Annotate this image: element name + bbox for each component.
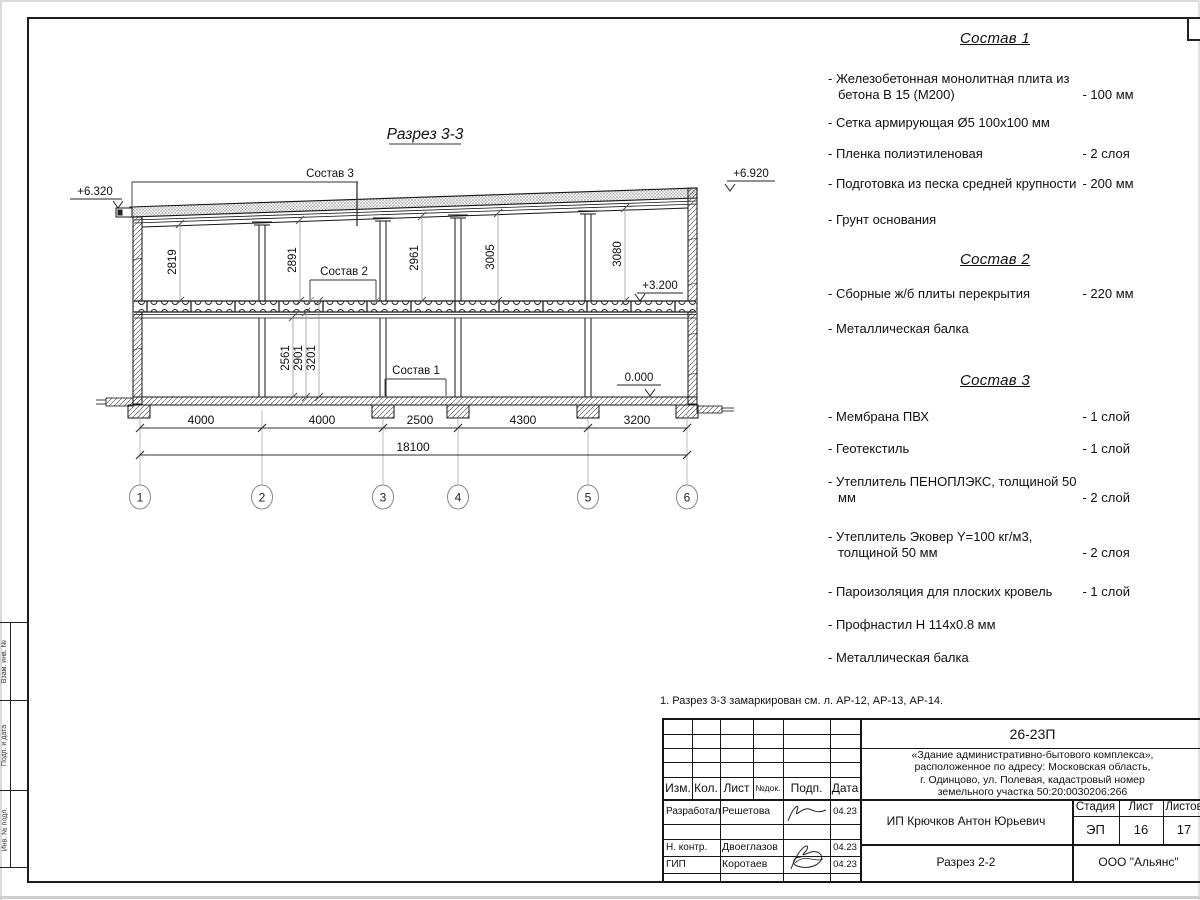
tb-date-ncontrol: 04.23 bbox=[830, 839, 860, 856]
comp-item-text: - Подготовка из песка средней крупности bbox=[828, 176, 1082, 192]
dim-upper-2: 2891 bbox=[287, 247, 299, 273]
section-title: Разрез 3-3 bbox=[387, 126, 464, 144]
dim-bay-4: 4300 bbox=[510, 413, 537, 427]
comp-item-text: - Утеплитель ПЕНОПЛЭКС, толщиной 50 мм bbox=[828, 474, 1082, 505]
axis-5: 5 bbox=[585, 491, 592, 505]
tb-sheets-value: 17 bbox=[1163, 816, 1200, 844]
comp-item-value: - 2 слоя bbox=[1082, 545, 1162, 561]
comp1-item: - Пленка полиэтиленовая - 2 слоя bbox=[828, 146, 1162, 162]
comp-item-text: - Железобетонная монолитная плита из бет… bbox=[828, 71, 1082, 102]
title-block: Изм. Кол. Лист №док. Подп. Дата Разработ… bbox=[662, 718, 1200, 883]
tb-sheet-label: Лист bbox=[1119, 799, 1163, 816]
signature-gip bbox=[785, 839, 829, 873]
comp-item-text: - Металлическая балка bbox=[828, 650, 1082, 666]
axis-3: 3 bbox=[380, 491, 387, 505]
comp3-item: - Утеплитель ПЕНОПЛЭКС, толщиной 50 мм -… bbox=[828, 474, 1162, 505]
comp-item-text: - Металлическая балка bbox=[828, 321, 1082, 337]
dims-lower: 2561 2901 3201 bbox=[280, 297, 323, 401]
dim-lower-1: 2561 bbox=[280, 345, 292, 371]
section-drawing: Разрез 3-3 bbox=[60, 120, 800, 530]
paper-edge-bottom bbox=[0, 896, 1200, 899]
tb-drawing-name: Разрез 2-2 bbox=[860, 844, 1072, 881]
comp-item-text: - Утеплитель Эковер Y=100 кг/м3, толщино… bbox=[828, 529, 1082, 560]
composition-panel: Состав 1 - Железобетонная монолитная пли… bbox=[828, 30, 1162, 665]
axis-1: 1 bbox=[137, 491, 144, 505]
side-stamp-3: Инв. № подл. bbox=[0, 790, 28, 868]
label-sostav-1: Состав 1 bbox=[392, 365, 440, 377]
comp-item-text: - Сборные ж/б плиты перекрытия bbox=[828, 286, 1082, 302]
comp-item-text: - Профнастил Н 114х0.8 мм bbox=[828, 617, 1082, 633]
comp1-item: - Грунт основания bbox=[828, 212, 1162, 228]
comp1-item: - Подготовка из песка средней крупности … bbox=[828, 176, 1162, 192]
comp-item-value: - 200 мм bbox=[1082, 176, 1162, 192]
comp3-item: - Металлическая балка bbox=[828, 650, 1162, 666]
columns-upper bbox=[252, 211, 598, 301]
comp-item-text: - Сетка армирующая Ø5 100х100 мм bbox=[828, 115, 1082, 131]
elevation-roof-right: +6.920 bbox=[733, 168, 769, 180]
axis-6: 6 bbox=[684, 491, 691, 505]
comp3-title: Состав 3 bbox=[828, 372, 1162, 389]
axis-2: 2 bbox=[259, 491, 266, 505]
dim-upper-3: 2961 bbox=[409, 245, 421, 271]
section-title-text: Разрез 3-3 bbox=[387, 126, 464, 143]
comp2-item: - Сборные ж/б плиты перекрытия - 220 мм bbox=[828, 286, 1162, 302]
side-stamp-2-label-wrap: Подп. и дата bbox=[0, 701, 11, 790]
side-stamp-3-label-wrap: Инв. № подл. bbox=[0, 791, 11, 867]
side-stamp-3-label: Инв. № подл. bbox=[2, 807, 9, 851]
dims-bottom: 4000 4000 2500 4300 3200 18100 bbox=[136, 410, 691, 486]
tb-name-gip: Коротаев bbox=[722, 856, 783, 873]
tb-col-izm: Изм. bbox=[664, 777, 692, 799]
comp-item-text: - Мембрана ПВХ bbox=[828, 409, 1082, 425]
comp-item-value: - 1 слой bbox=[1082, 584, 1162, 600]
frame-top bbox=[28, 17, 1200, 19]
side-stamp-2: Подп. и дата bbox=[0, 700, 28, 790]
tb-col-kol: Кол. bbox=[692, 777, 720, 799]
comp-item-value: - 100 мм bbox=[1082, 87, 1162, 103]
tb-project-line1: «Здание административно-бытового комплек… bbox=[912, 749, 1154, 761]
tb-project: «Здание административно-бытового комплек… bbox=[860, 748, 1200, 799]
comp3-item: - Профнастил Н 114х0.8 мм bbox=[828, 617, 1162, 633]
dim-bay-3: 2500 bbox=[407, 413, 434, 427]
dim-upper-1: 2819 bbox=[167, 249, 179, 275]
signature-developer bbox=[784, 801, 829, 825]
roof bbox=[116, 188, 697, 227]
comp-item-value: - 1 слой bbox=[1082, 409, 1162, 425]
tb-name-developer: Решетова bbox=[722, 799, 781, 824]
tb-project-line3: г. Одинцово, ул. Полевая, кадастровый но… bbox=[920, 774, 1145, 786]
comp2-item: - Металлическая балка bbox=[828, 321, 1162, 337]
dim-upper-4: 3005 bbox=[485, 244, 497, 270]
comp3-item: - Геотекстиль - 1 слой bbox=[828, 441, 1162, 457]
elevation-roof-left: +6.320 bbox=[77, 186, 113, 198]
tb-col-ndok: №док. bbox=[753, 777, 783, 799]
dim-bay-1: 4000 bbox=[188, 413, 215, 427]
comp-item-text: - Пароизоляция для плоских кровель bbox=[828, 584, 1082, 600]
side-stamp-2-label: Подп. и дата bbox=[2, 725, 9, 766]
tb-project-line2: расположенное по адресу: Московская обла… bbox=[915, 761, 1151, 773]
floor-slab bbox=[134, 301, 696, 318]
comp-item-value: - 220 мм bbox=[1082, 286, 1162, 302]
comp3-item: - Пароизоляция для плоских кровель - 1 с… bbox=[828, 584, 1162, 600]
tb-client: ИП Крючков Антон Юрьевич bbox=[860, 799, 1072, 844]
comp-item-value: - 2 слой bbox=[1082, 490, 1162, 506]
comp2-title: Состав 2 bbox=[828, 251, 1162, 268]
label-sostav-3: Состав 3 bbox=[306, 168, 354, 180]
tb-stage-value: ЭП bbox=[1072, 816, 1119, 844]
tb-role-gip: ГИП bbox=[666, 856, 720, 873]
tb-col-podp: Подп. bbox=[783, 777, 830, 799]
comp-item-value: - 1 слой bbox=[1082, 441, 1162, 457]
axis-bubbles: 1 2 3 4 5 6 bbox=[130, 485, 698, 509]
comp1-item: - Железобетонная монолитная плита из бет… bbox=[828, 71, 1162, 102]
comp-item-text: - Геотекстиль bbox=[828, 441, 1082, 457]
tb-role-developer: Разработал bbox=[666, 799, 720, 824]
tb-doc-number: 26-23П bbox=[860, 720, 1200, 748]
comp1-title: Состав 1 bbox=[828, 30, 1162, 47]
dim-total: 18100 bbox=[396, 440, 430, 454]
paper-edge-top bbox=[0, 0, 1200, 2]
dim-lower-3: 3201 bbox=[306, 345, 318, 371]
dim-lower-2: 2901 bbox=[293, 345, 305, 371]
elevation-ground: 0.000 bbox=[625, 372, 654, 384]
comp3-item: - Утеплитель Эковер Y=100 кг/м3, толщино… bbox=[828, 529, 1162, 560]
tb-role-ncontrol: Н. контр. bbox=[666, 839, 720, 856]
drawing-sheet: Взам. инв. № Подп. и дата Инв. № подл. bbox=[0, 0, 1200, 900]
tb-sheets-label: Листов bbox=[1163, 799, 1200, 816]
tb-company: ООО "Альянс" bbox=[1072, 844, 1200, 881]
tb-col-data: Дата bbox=[830, 777, 860, 799]
dim-upper-5: 3080 bbox=[612, 241, 624, 267]
dim-bay-5: 3200 bbox=[624, 413, 651, 427]
axis-4: 4 bbox=[455, 491, 462, 505]
comp1-item: - Сетка армирующая Ø5 100х100 мм bbox=[828, 115, 1162, 131]
elevation-floor: +3.200 bbox=[642, 280, 678, 292]
side-stamp-1: Взам. инв. № bbox=[0, 622, 28, 700]
dim-bay-2: 4000 bbox=[309, 413, 336, 427]
label-sostav-2: Состав 2 bbox=[320, 266, 368, 278]
corner-box bbox=[1187, 17, 1200, 41]
tb-date-gip: 04.23 bbox=[830, 856, 860, 873]
sheet-note: 1. Разрез 3-3 замаркирован см. л. АР-12,… bbox=[660, 695, 943, 707]
comp-item-text: - Пленка полиэтиленовая bbox=[828, 146, 1082, 162]
tb-stage-label: Стадия bbox=[1072, 799, 1119, 816]
tb-col-list: Лист bbox=[720, 777, 753, 799]
comp3-item: - Мембрана ПВХ - 1 слой bbox=[828, 409, 1162, 425]
tb-sheet-value: 16 bbox=[1119, 816, 1163, 844]
comp-item-value: - 2 слоя bbox=[1082, 146, 1162, 162]
side-stamp-1-label-wrap: Взам. инв. № bbox=[0, 623, 11, 700]
comp-item-text: - Грунт основания bbox=[828, 212, 1082, 228]
side-stamp-1-label: Взам. инв. № bbox=[2, 640, 9, 683]
tb-name-ncontrol: Двоеглазов bbox=[722, 839, 783, 856]
tb-date-developer: 04.23 bbox=[830, 799, 860, 824]
tb-project-line4: земельного участка 50:20:0030206:266 bbox=[938, 786, 1128, 798]
